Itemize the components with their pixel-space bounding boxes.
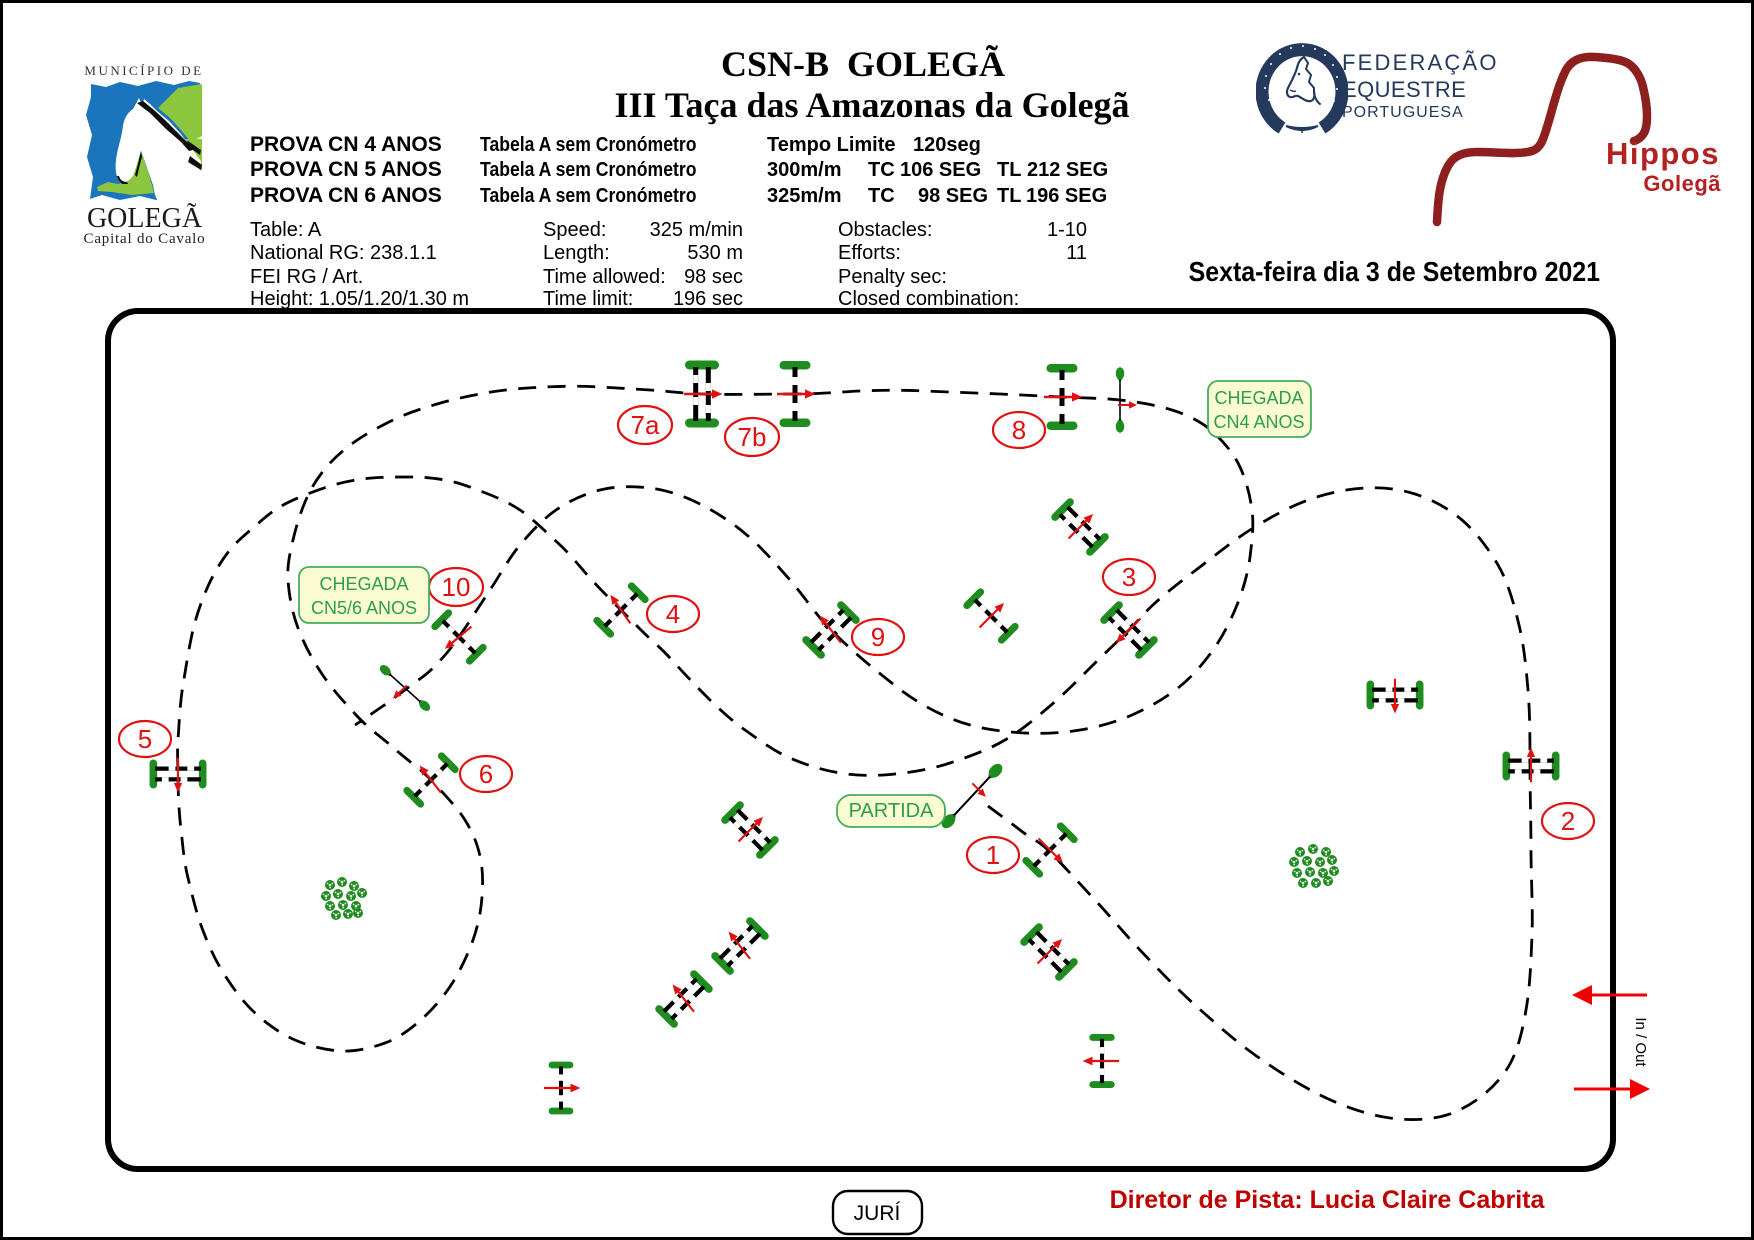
svg-text:8: 8 (1012, 415, 1026, 445)
svg-text:In / Out: In / Out (1632, 1017, 1649, 1067)
svg-text:3: 3 (1122, 562, 1136, 592)
svg-text:PARTIDA: PARTIDA (849, 800, 934, 822)
svg-text:7a: 7a (631, 410, 660, 440)
svg-text:CHEGADA: CHEGADA (319, 574, 408, 594)
svg-text:CN4 ANOS: CN4 ANOS (1213, 412, 1304, 432)
svg-text:1: 1 (986, 840, 1000, 870)
svg-text:2: 2 (1561, 806, 1575, 836)
svg-text:6: 6 (479, 759, 493, 789)
svg-text:CN5/6 ANOS: CN5/6 ANOS (311, 598, 417, 618)
svg-text:4: 4 (666, 599, 680, 629)
svg-text:5: 5 (138, 724, 152, 754)
svg-text:10: 10 (442, 572, 471, 602)
svg-text:CHEGADA: CHEGADA (1214, 388, 1303, 408)
svg-text:7b: 7b (738, 422, 767, 452)
svg-text:JURÍ: JURÍ (854, 1202, 901, 1225)
svg-text:9: 9 (871, 622, 885, 652)
